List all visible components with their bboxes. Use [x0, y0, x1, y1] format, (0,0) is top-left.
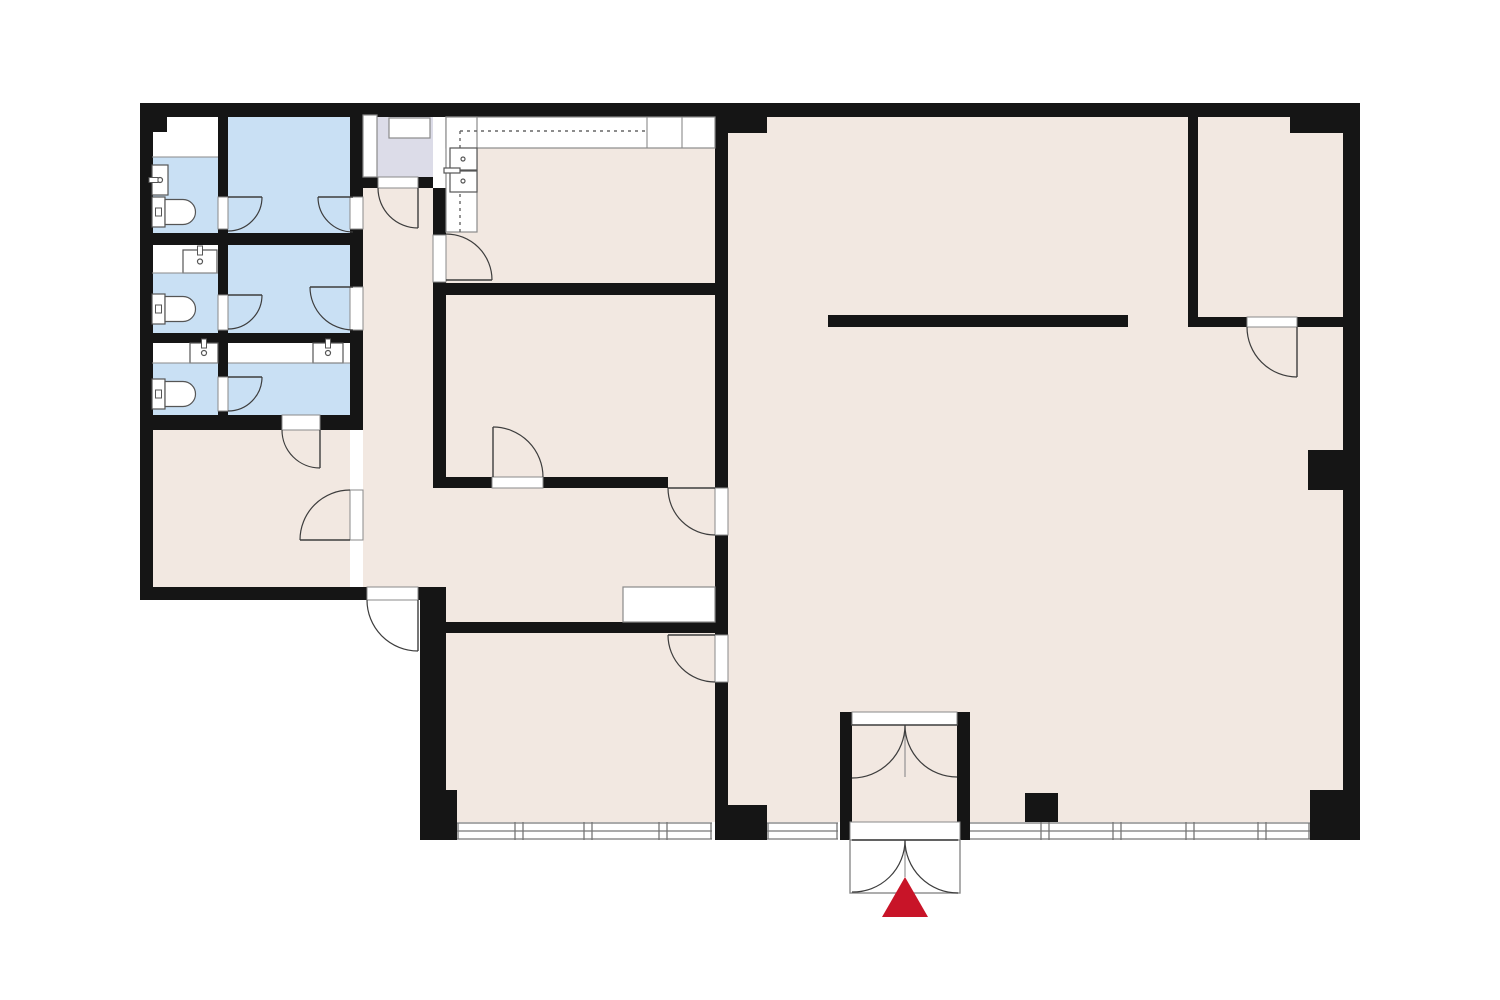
wall-bath-horizontal-3 — [140, 415, 363, 430]
toilet-stall3-bowl — [165, 382, 196, 407]
wall-bath-horizontal-1 — [152, 233, 363, 245]
sink-stall1-tap — [149, 178, 158, 183]
sink-room-f-tap — [326, 339, 331, 348]
toilet-stall2-bowl — [165, 297, 196, 322]
opening-storage-corridor — [350, 490, 363, 540]
hallway-hatch-cabinet — [623, 587, 715, 622]
kitchen-sink-cell-top — [450, 148, 477, 170]
toilet-stall2 — [152, 294, 196, 324]
wall-bath-vertical-1 — [218, 113, 228, 415]
sink-stall3-tap — [202, 339, 207, 348]
wall-top-junction-block — [715, 103, 767, 133]
sink-room-f — [313, 339, 343, 363]
window-segment-right — [968, 822, 1310, 840]
wall-corridor-right — [433, 188, 446, 477]
floor-room-f-blue — [228, 363, 350, 415]
floor-meeting-room — [446, 295, 715, 477]
kitchen-sink-tap-lever — [444, 168, 460, 173]
floor-corridor — [363, 188, 433, 587]
opening-room-d-corridor — [350, 287, 363, 330]
opening-stall2-door — [218, 295, 228, 330]
toilet-stall3-flush-button — [156, 390, 162, 398]
toilet-stall3 — [152, 379, 196, 409]
toilet-stall1-bowl — [165, 200, 195, 225]
sink-stall3 — [190, 339, 218, 363]
opening-lavender-room — [378, 177, 418, 188]
sink-stall2-tap — [198, 246, 203, 255]
wall-right-pilaster — [1308, 450, 1343, 490]
opening-corridor-exit — [367, 587, 418, 600]
floor-plan-svg — [0, 0, 1500, 1000]
floor-room-d-blue — [228, 245, 350, 333]
wall-bath-horizontal-2 — [152, 333, 363, 343]
wall-top-right-room-bottom-b — [1297, 317, 1343, 327]
opening-meeting-door — [492, 477, 543, 488]
window-segment-left — [457, 822, 712, 840]
wall-hall-column — [1025, 793, 1058, 822]
floor-plan-page — [0, 0, 1500, 1000]
wall-corner-bottom-left — [420, 790, 457, 840]
opening-hallway-hall — [715, 488, 728, 535]
window-segment-center — [767, 822, 838, 840]
opening-hall-lower-room — [715, 635, 728, 682]
wall-hall-freestanding-bar — [828, 315, 1128, 327]
wall-vestibule-right-post — [957, 712, 970, 840]
wall-top-right-room-bottom-a — [1188, 317, 1247, 327]
opening-stall1-door — [218, 197, 228, 229]
lavender-shelf-box — [389, 118, 430, 138]
opening-vestibule-top — [852, 712, 957, 725]
toilet-stall2-flush-button — [156, 305, 162, 313]
wall-mid-vertical — [715, 103, 728, 840]
wall-vestibule-left-post — [840, 712, 852, 840]
floor-lower-middle-room — [446, 632, 715, 822]
opening-room-f-storage — [282, 415, 320, 430]
wall-exterior-right — [1343, 103, 1360, 840]
sink-stall1 — [149, 165, 168, 195]
wall-top-right-stub — [1290, 117, 1343, 133]
floor-top-right-room — [1198, 117, 1343, 317]
opening-room-b-corridor — [350, 197, 363, 229]
lavender-closet-strip — [363, 115, 377, 177]
wall-kitchen-meeting — [433, 283, 728, 295]
wall-hallway-bottom — [433, 622, 715, 633]
kitchen-counter-top — [446, 117, 715, 148]
floor-room-b-blue — [228, 113, 350, 233]
wall-bottom-junction-block — [717, 805, 767, 840]
wall-bath-vertical-2 — [350, 103, 363, 415]
opening-stall3-door — [218, 377, 228, 411]
wall-left-mid-vertical — [420, 587, 446, 792]
wall-corner-bottom-right — [1310, 790, 1360, 840]
wall-step-top-left — [150, 113, 167, 132]
toilet-stall1 — [152, 197, 195, 227]
sink-stall2 — [183, 246, 217, 273]
opening-kitchen-door — [433, 235, 446, 282]
opening-top-right-room — [1247, 317, 1297, 327]
toilet-stall1-flush-button — [156, 208, 162, 216]
kitchen-sink-cell-bottom — [450, 171, 477, 192]
wall-top-right-room-left — [1188, 103, 1198, 327]
opening-vestibule-bottom — [850, 822, 960, 840]
wall-meeting-bottom — [433, 477, 668, 488]
